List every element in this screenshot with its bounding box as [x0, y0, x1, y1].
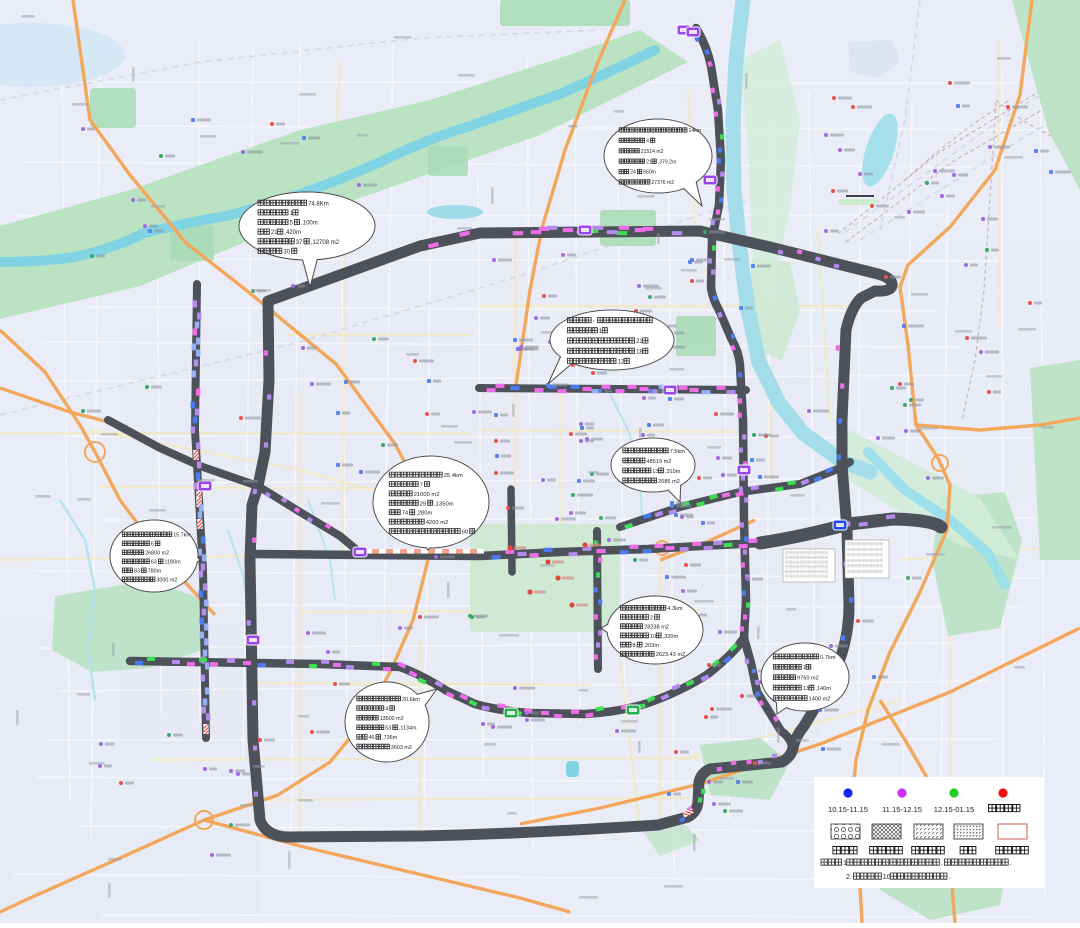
svg-text:1180m: 1180m: [165, 560, 182, 566]
svg-text:46: 46: [369, 735, 375, 741]
svg-text:3603 m2: 3603 m2: [391, 745, 412, 751]
svg-text:.: .: [948, 874, 950, 881]
svg-text:1: 1: [843, 860, 847, 867]
svg-text:,320m: ,320m: [663, 634, 679, 640]
svg-text:12.15-01.15: 12.15-01.15: [934, 805, 975, 814]
svg-text:8: 8: [633, 643, 636, 649]
svg-text:26800 m2: 26800 m2: [145, 551, 169, 557]
svg-text:10: 10: [650, 634, 656, 640]
svg-text:,203m: ,203m: [644, 643, 660, 649]
svg-text:53: 53: [385, 726, 391, 732]
svg-text:,100m: ,100m: [301, 221, 318, 227]
svg-text:9760 m2: 9760 m2: [797, 676, 819, 682]
svg-text:,12708 m2: ,12708 m2: [311, 240, 340, 246]
svg-text:4.3km: 4.3km: [667, 606, 683, 612]
svg-text:21: 21: [636, 339, 643, 345]
svg-text:60: 60: [462, 530, 468, 536]
svg-text:83: 83: [134, 569, 140, 575]
svg-text:.: .: [1010, 860, 1012, 867]
svg-text:,310m: ,310m: [665, 469, 681, 475]
svg-text:,1134m: ,1134m: [399, 726, 417, 732]
svg-text:660m: 660m: [643, 170, 656, 176]
svg-text:2.: 2.: [846, 874, 852, 881]
svg-text:7.5km: 7.5km: [670, 449, 686, 455]
svg-text:29: 29: [420, 501, 426, 507]
svg-text:.: .: [941, 860, 943, 867]
svg-text:10: 10: [883, 874, 891, 881]
svg-text:,140m: ,140m: [815, 686, 831, 692]
svg-text:6: 6: [151, 542, 154, 548]
svg-text:,420m: ,420m: [284, 230, 301, 236]
svg-text:13: 13: [652, 469, 658, 475]
svg-text:30: 30: [283, 249, 290, 255]
svg-text:,1350m: ,1350m: [434, 501, 454, 507]
svg-text:14km: 14km: [689, 128, 701, 134]
svg-text:13500 m2: 13500 m2: [380, 716, 404, 722]
svg-text:13: 13: [803, 686, 809, 692]
svg-text:74: 74: [402, 511, 409, 517]
svg-text:-: -: [593, 319, 595, 325]
svg-text:2685 m2: 2685 m2: [658, 479, 680, 485]
svg-text:780m: 780m: [148, 569, 162, 575]
svg-text:21: 21: [271, 230, 278, 236]
svg-text:18: 18: [636, 349, 643, 355]
svg-text:12: 12: [618, 360, 625, 366]
svg-text:21000 m2: 21000 m2: [414, 492, 440, 498]
svg-text:,379.2m: ,379.2m: [658, 159, 676, 165]
svg-text:4: 4: [385, 706, 388, 712]
svg-text:1: 1: [803, 665, 806, 671]
svg-text:25.4km: 25.4km: [444, 473, 463, 479]
svg-text:11.15-12.15: 11.15-12.15: [882, 805, 922, 814]
svg-text:2: 2: [650, 615, 653, 621]
svg-text:15.7km: 15.7km: [173, 533, 191, 539]
svg-text:63: 63: [151, 560, 157, 566]
svg-text:37: 37: [296, 240, 303, 246]
svg-text:28238 m2: 28238 m2: [644, 625, 669, 631]
svg-text:27376 m2: 27376 m2: [651, 180, 674, 186]
svg-text:2623.43 m2: 2623.43 m2: [656, 652, 686, 658]
svg-text:0.7km: 0.7km: [820, 655, 836, 661]
svg-text:,280m: ,280m: [416, 511, 432, 517]
svg-text:1400 m2: 1400 m2: [809, 696, 831, 702]
svg-text:3000 m2: 3000 m2: [156, 578, 177, 584]
svg-text:,736m: ,736m: [382, 735, 397, 741]
svg-text:10.15-11.15: 10.15-11.15: [828, 805, 868, 814]
svg-text:7: 7: [420, 483, 423, 489]
svg-text:21514 m2: 21514 m2: [641, 149, 664, 155]
svg-text:48519 m2: 48519 m2: [647, 459, 672, 465]
svg-text:20.6km: 20.6km: [402, 697, 420, 703]
svg-text:4200 m2: 4200 m2: [426, 520, 449, 526]
svg-text:74.8Km: 74.8Km: [308, 201, 329, 207]
svg-text:24: 24: [630, 170, 636, 176]
svg-text:21: 21: [646, 159, 652, 165]
svg-text:4: 4: [646, 139, 649, 145]
